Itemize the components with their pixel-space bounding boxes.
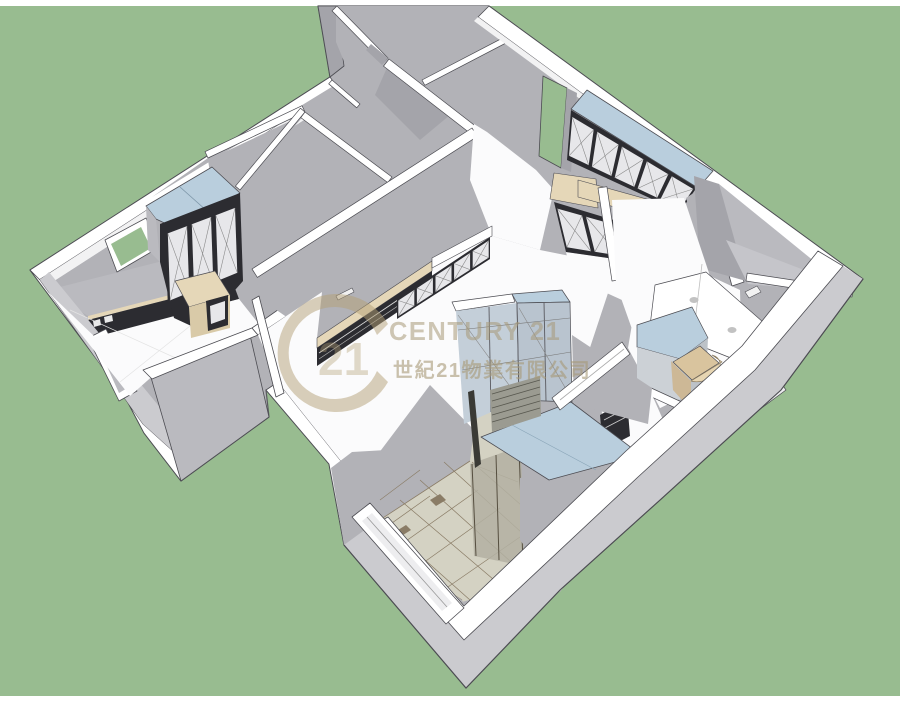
svg-text:世紀21物業有限公司: 世紀21物業有限公司 [393,358,591,382]
svg-text:21: 21 [318,333,369,385]
svg-text:CENTURY 21: CENTURY 21 [389,318,561,346]
